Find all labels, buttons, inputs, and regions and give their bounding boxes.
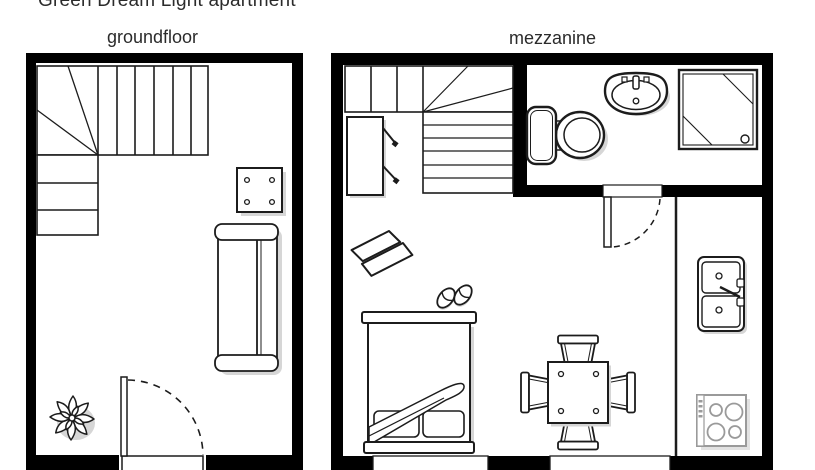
square-table [237, 168, 286, 216]
shower [679, 70, 757, 149]
drain [741, 135, 749, 143]
mezzanine-plan [331, 53, 773, 470]
faucet-handle [644, 77, 649, 82]
headboard [362, 312, 476, 323]
sofa [215, 224, 282, 375]
doorstep [122, 456, 203, 470]
footboard [364, 442, 474, 453]
faucet-spout [633, 76, 639, 89]
dining-table [548, 362, 611, 427]
kitchen-sink [698, 257, 747, 334]
chair [521, 373, 550, 413]
toilet-tank [527, 107, 556, 164]
washbasin [605, 73, 670, 116]
stove [697, 395, 750, 450]
faucet-handle [737, 298, 744, 306]
drain [633, 98, 639, 104]
floor-plan-canvas: Green Dream Light apartment groundfloor … [0, 0, 815, 470]
stove-control-strip [697, 395, 704, 446]
bathroom-west-wall [513, 65, 527, 197]
faucet-handle [622, 77, 627, 82]
faucet-handle [737, 279, 744, 287]
plant [50, 396, 95, 440]
groundfloor-plan [26, 53, 303, 470]
window [373, 456, 488, 470]
pillow [423, 411, 464, 437]
floor-plan-drawing [0, 0, 815, 470]
double-bed [362, 312, 476, 453]
chair [558, 336, 598, 365]
window [550, 456, 670, 470]
